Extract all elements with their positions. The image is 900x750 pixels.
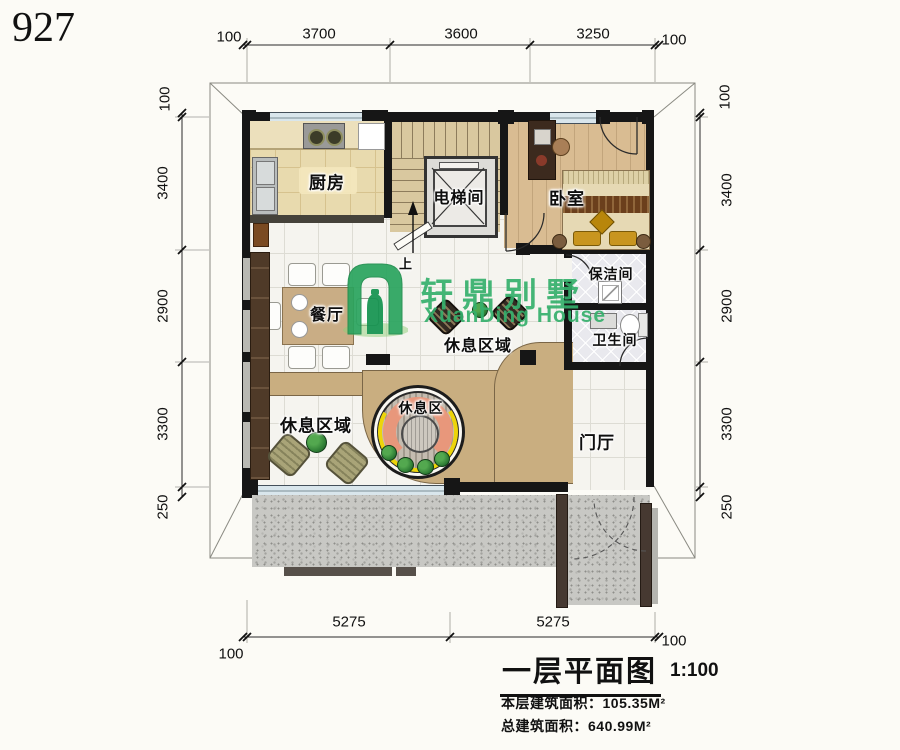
drawing-scale: 1:100 bbox=[670, 660, 719, 682]
room-label-dining: 餐厅 bbox=[310, 301, 344, 325]
dim-right-2: 2900 bbox=[719, 289, 736, 322]
total-area-value: 640.99M² bbox=[588, 718, 651, 734]
floor-area-value: 105.35M² bbox=[603, 695, 666, 711]
room-label-cleaning: 保洁间 bbox=[589, 264, 634, 284]
dim-top-2: 3600 bbox=[444, 26, 477, 43]
floor-area-label: 本层建筑面积： bbox=[501, 695, 603, 711]
dim-right-3: 3300 bbox=[719, 407, 736, 440]
room-label-rest-circle: 休息区 bbox=[399, 398, 444, 418]
entry-door-swing bbox=[572, 497, 634, 559]
drawing-title: 一层平面图 bbox=[500, 648, 661, 697]
room-label-bedroom: 卧室 bbox=[549, 185, 585, 210]
dim-right-4: 250 bbox=[719, 494, 736, 519]
room-label-foyer: 门厅 bbox=[579, 429, 615, 454]
dim-bottom-3: 100 bbox=[661, 633, 686, 650]
bedroom-door-swing-2 bbox=[506, 213, 544, 251]
room-label-rest-left: 休息区域 bbox=[280, 412, 352, 437]
dim-bottom-1: 5275 bbox=[332, 614, 365, 631]
dim-top-3: 3250 bbox=[576, 26, 609, 43]
dim-left-1: 3400 bbox=[155, 166, 172, 199]
dim-left-3: 3300 bbox=[155, 407, 172, 440]
dim-bottom-0: 100 bbox=[218, 646, 243, 663]
total-area-label: 总建筑面积： bbox=[501, 718, 588, 734]
total-area-line: 总建筑面积：640.99M² bbox=[501, 716, 651, 736]
room-label-kitchen: 厨房 bbox=[309, 169, 345, 194]
bedroom-door-swing bbox=[600, 117, 637, 154]
stair-up-label: 上 bbox=[399, 254, 413, 273]
dim-top-0: 100 bbox=[216, 29, 241, 46]
dim-top-4: 100 bbox=[661, 32, 686, 49]
stair-up-arrow bbox=[408, 201, 418, 253]
door-swing-overlay bbox=[0, 0, 900, 750]
dim-left-0: 100 bbox=[157, 86, 174, 111]
dim-bottom-2: 5275 bbox=[536, 614, 569, 631]
brand-name-en: XuanDing House bbox=[424, 304, 606, 328]
dim-left-4: 250 bbox=[155, 494, 172, 519]
dim-right-0: 100 bbox=[717, 84, 734, 109]
entry-door-swing-2 bbox=[594, 499, 646, 551]
room-label-elevator: 电梯间 bbox=[433, 184, 484, 208]
room-label-bathroom: 卫生间 bbox=[593, 330, 638, 350]
dim-right-1: 3400 bbox=[719, 173, 736, 206]
floor-plan-sheet: 927 bbox=[0, 0, 900, 750]
dim-top-1: 3700 bbox=[302, 26, 335, 43]
dim-left-2: 2900 bbox=[155, 289, 172, 322]
room-label-rest-mid: 休息区域 bbox=[444, 332, 512, 356]
floor-area-line: 本层建筑面积：105.35M² bbox=[501, 693, 666, 713]
